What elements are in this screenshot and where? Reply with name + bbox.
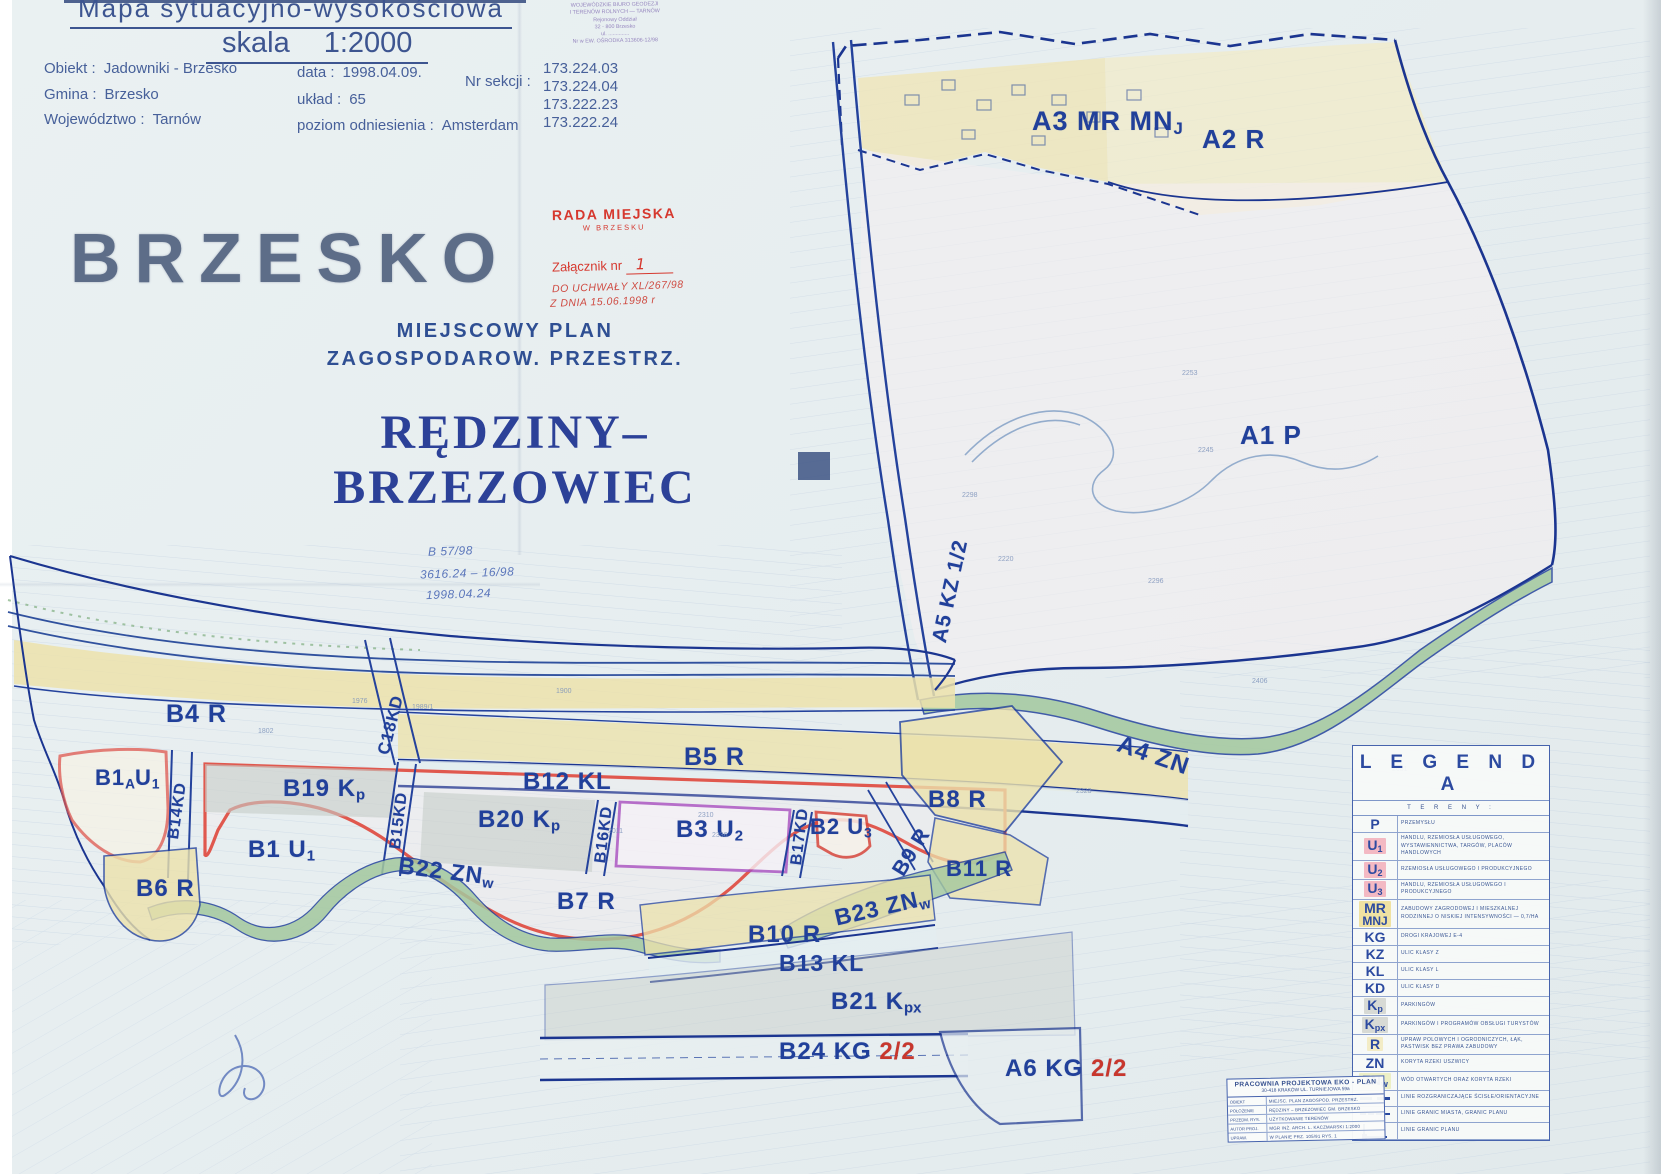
attachment-number: 1 — [625, 254, 673, 274]
zone-label-b6r: B6 R — [136, 875, 195, 903]
zone-label-a1p: A1 P — [1240, 420, 1302, 451]
zone-label-b13-kl: B13 KL — [779, 950, 864, 977]
geodesy-office-stamp: WOJEWÓDZKIE BIURO GEODEZJII TERENÓW ROLN… — [556, 1, 675, 47]
legend-description: ZABUDOWY ZAGRODOWEJ I MIESZKALNEJ RODZIN… — [1398, 904, 1549, 923]
parcel-number: 2011 — [608, 828, 623, 835]
parcel-number: 1976 — [352, 698, 368, 705]
field-nr-sekcji-label: Nr sekcji : — [465, 73, 531, 90]
city-council-stamp: RADA MIEJSKA W BRZESKU — [552, 205, 676, 233]
zone-label-b12-kl: B12 KL — [523, 768, 612, 796]
legend-description: PARKINGÓW I PROGRAMÓW OBSŁUGI TURYSTÓW — [1398, 1019, 1542, 1031]
zone-label-b3-u2: B3 U2 — [676, 816, 743, 845]
zone-label-b1-u1: B1 U1 — [248, 836, 315, 865]
legend-code-chip: KL — [1363, 964, 1388, 978]
legend-description: LINIE ROZGRANICZAJĄCE ŚCISŁE/ORIENTACYJN… — [1398, 1092, 1542, 1104]
legend-description: LINIE GRANIC PLANU — [1398, 1125, 1463, 1137]
section-number: 173.222.24 — [543, 114, 618, 132]
legend-code-chip: KZ — [1363, 947, 1388, 961]
field-gmina: Gmina :Brzesko — [44, 86, 159, 103]
section-numbers: 173.224.03173.224.04173.222.23173.222.24 — [543, 60, 618, 132]
legend-description: ULIC KLASY D — [1398, 982, 1443, 994]
zone-label-b11r: B11 R — [946, 856, 1012, 882]
parcel-number: 2253 — [1182, 370, 1198, 377]
parcel-number: 2220 — [998, 556, 1014, 563]
legend-description: KORYTA RZEKI USZWICY — [1398, 1057, 1472, 1069]
parcel-number: 2310 — [698, 812, 714, 819]
scale-label: skala — [222, 27, 290, 59]
legend-row: KpxPARKINGÓW I PROGRAMÓW OBSŁUGI TURYSTÓ… — [1353, 1016, 1549, 1035]
scale-value: 1:2000 — [324, 27, 413, 59]
legend-description: ULIC KLASY L — [1398, 965, 1442, 977]
zone-label-a2r: A2 R — [1202, 124, 1265, 155]
zone-label-a3-mr-mnj: A3 MR MNJ — [1032, 106, 1183, 139]
parcel-number: 2298 — [962, 492, 978, 499]
survey-note-1: B 57/98 — [428, 543, 473, 559]
zone-label-b2-u3: B2 U3 — [810, 814, 872, 840]
field-uklad: układ :65 — [297, 91, 366, 108]
legend-description: PARKINGÓW — [1398, 1000, 1438, 1012]
legend-code-chip: R — [1367, 1037, 1383, 1051]
field-wojewodztwo: Województwo :Tarnów — [44, 111, 201, 128]
parcel-number: 1989/1 — [412, 704, 433, 711]
plan-title-line2: ZAGOSPODAROW. PRZESTRZ. — [295, 348, 715, 371]
section-number: 173.222.23 — [543, 96, 618, 114]
legend-code-chip: KG — [1362, 930, 1389, 944]
legend-row: U2RZEMIOSŁA USŁUGOWEGO I PRODUKCYJNEGO — [1353, 861, 1549, 880]
field-obiekt: Obiekt :Jadowniki - Brzesko — [44, 60, 237, 77]
zone-label-b19-kp: B19 Kp — [283, 775, 365, 804]
legend-row: KGDROGI KRAJOWEJ E-4 — [1353, 929, 1549, 946]
legend-row: KDULIC KLASY D — [1353, 980, 1549, 997]
legend-code-chip: U1 — [1364, 838, 1385, 854]
area-title-line2: BRZEZOWIEC — [285, 460, 745, 515]
survey-note-3: 1998.04.24 — [426, 586, 492, 602]
attachment-stamp: Załącznik nr 1 — [552, 254, 674, 275]
publisher-stamp: PRACOWNIA PROJEKTOWA EKO - PLAN 30-418 K… — [1226, 1075, 1385, 1142]
legend-row: MRMNJZABUDOWY ZAGRODOWEJ I MIESZKALNEJ R… — [1353, 900, 1549, 929]
parcel-number: 2323 — [1076, 788, 1092, 795]
zone-label-b5r: B5 R — [684, 743, 745, 772]
parcel-number: 2245 — [1198, 447, 1214, 454]
zone-label-b4r: B4 R — [166, 700, 227, 729]
zone-label-b24-kg: B24 KG 2/2 — [779, 1038, 916, 1066]
legend-description: ULIC KLASY Z — [1398, 948, 1442, 960]
legend-code-chip: P — [1367, 817, 1382, 831]
zone-shape-a1p — [860, 150, 1555, 690]
legend-row: KLULIC KLASY L — [1353, 963, 1549, 980]
legend-row: PPRZEMYSŁU — [1353, 816, 1549, 833]
parcel-number: 2406 — [1252, 678, 1268, 685]
legend-description: HANDLU, RZEMIOSŁA USŁUGOWEGO I PRODUKCYJ… — [1398, 880, 1549, 899]
legend-row: RUPRAW POLOWYCH I OGRODNICZYCH, ŁĄK, PAS… — [1353, 1035, 1549, 1055]
zone-label-b8r: B8 R — [928, 786, 987, 814]
legend-title: L E G E N D A — [1353, 746, 1549, 801]
legend-code-chip: KD — [1362, 981, 1388, 995]
legend-row: U3HANDLU, RZEMIOSŁA USŁUGOWEGO I PRODUKC… — [1353, 880, 1549, 900]
legend-description: LINIE GRANIC MIASTA, GRANIC PLANU — [1398, 1108, 1510, 1120]
parcel-number: 2296 — [1148, 578, 1164, 585]
field-data: data :1998.04.09. — [297, 64, 422, 81]
legend-code-chip: U3 — [1364, 881, 1385, 897]
legend-description: DROGI KRAJOWEJ E-4 — [1398, 931, 1465, 943]
legend-subtitle: T E R E N Y : — [1353, 801, 1549, 816]
legend-row: ZNKORYTA RZEKI USZWICY — [1353, 1055, 1549, 1072]
plan-title-line1: MIEJSCOWY PLAN — [295, 320, 715, 343]
legend-code-chip: ZN — [1363, 1056, 1388, 1070]
zone-label-b20-kp: B20 Kp — [478, 806, 560, 835]
map-sheet-title: Mapa sytuacyjno-wysokościowa — [70, 0, 512, 29]
zone-label-b7r: B7 R — [557, 888, 616, 916]
legend-code-chip: U2 — [1364, 862, 1385, 878]
area-title-line1: RĘDZINY– — [285, 405, 745, 460]
legend-code-chip: Kpx — [1362, 1017, 1389, 1033]
dark-building — [798, 452, 830, 480]
legend-description: RZEMIOSŁA USŁUGOWEGO I PRODUKCYJNEGO — [1398, 864, 1535, 876]
parcel-number: 1802 — [258, 728, 274, 735]
legend-row: KZULIC KLASY Z — [1353, 946, 1549, 963]
legend-code-chip: Kp — [1364, 998, 1386, 1014]
legend-description: WÓD OTWARTYCH ORAZ KORYTA RZEKI — [1398, 1075, 1515, 1087]
zone-label-a6-kg: A6 KG 2/2 — [1005, 1055, 1127, 1083]
zone-label-b10r: B10 R — [748, 921, 821, 949]
council-stamp-line1: RADA MIEJSKA — [552, 205, 676, 223]
map-scale: skala1:2000 — [206, 27, 428, 64]
legend-description: UPRAW POLOWYCH I OGRODNICZYCH, ŁĄK, PAST… — [1398, 1035, 1549, 1054]
zone-label-b1a-u1: B1AU1 — [95, 765, 159, 791]
parcel-number: 1900 — [556, 688, 572, 695]
legend-row: U1HANDLU, RZEMIOSŁA USŁUGOWEGO, WYSTAWIE… — [1353, 833, 1549, 861]
legend-row: KpPARKINGÓW — [1353, 997, 1549, 1016]
publisher-rows: OBIEKTMIEJSC. PLAN ZAGOSPOD. PRZESTRZ.PO… — [1228, 1094, 1385, 1141]
legend-description: HANDLU, RZEMIOSŁA USŁUGOWEGO, WYSTAWIENN… — [1398, 833, 1549, 860]
parcel-number: 2336 — [712, 832, 728, 839]
section-number: 173.224.03 — [543, 60, 618, 78]
zone-label-b21-kpx: B21 Kpx — [831, 988, 921, 1017]
field-poziom: poziom odniesienia :Amsterdam — [297, 117, 518, 134]
city-title: BRZESKO — [70, 218, 510, 298]
legend-code-chip: MRMNJ — [1359, 901, 1390, 927]
section-number: 173.224.04 — [543, 78, 618, 96]
legend-description: PRZEMYSŁU — [1398, 818, 1438, 830]
scanned-zoning-map: { "title_block": { "map_title": "Mapa sy… — [0, 0, 1661, 1174]
